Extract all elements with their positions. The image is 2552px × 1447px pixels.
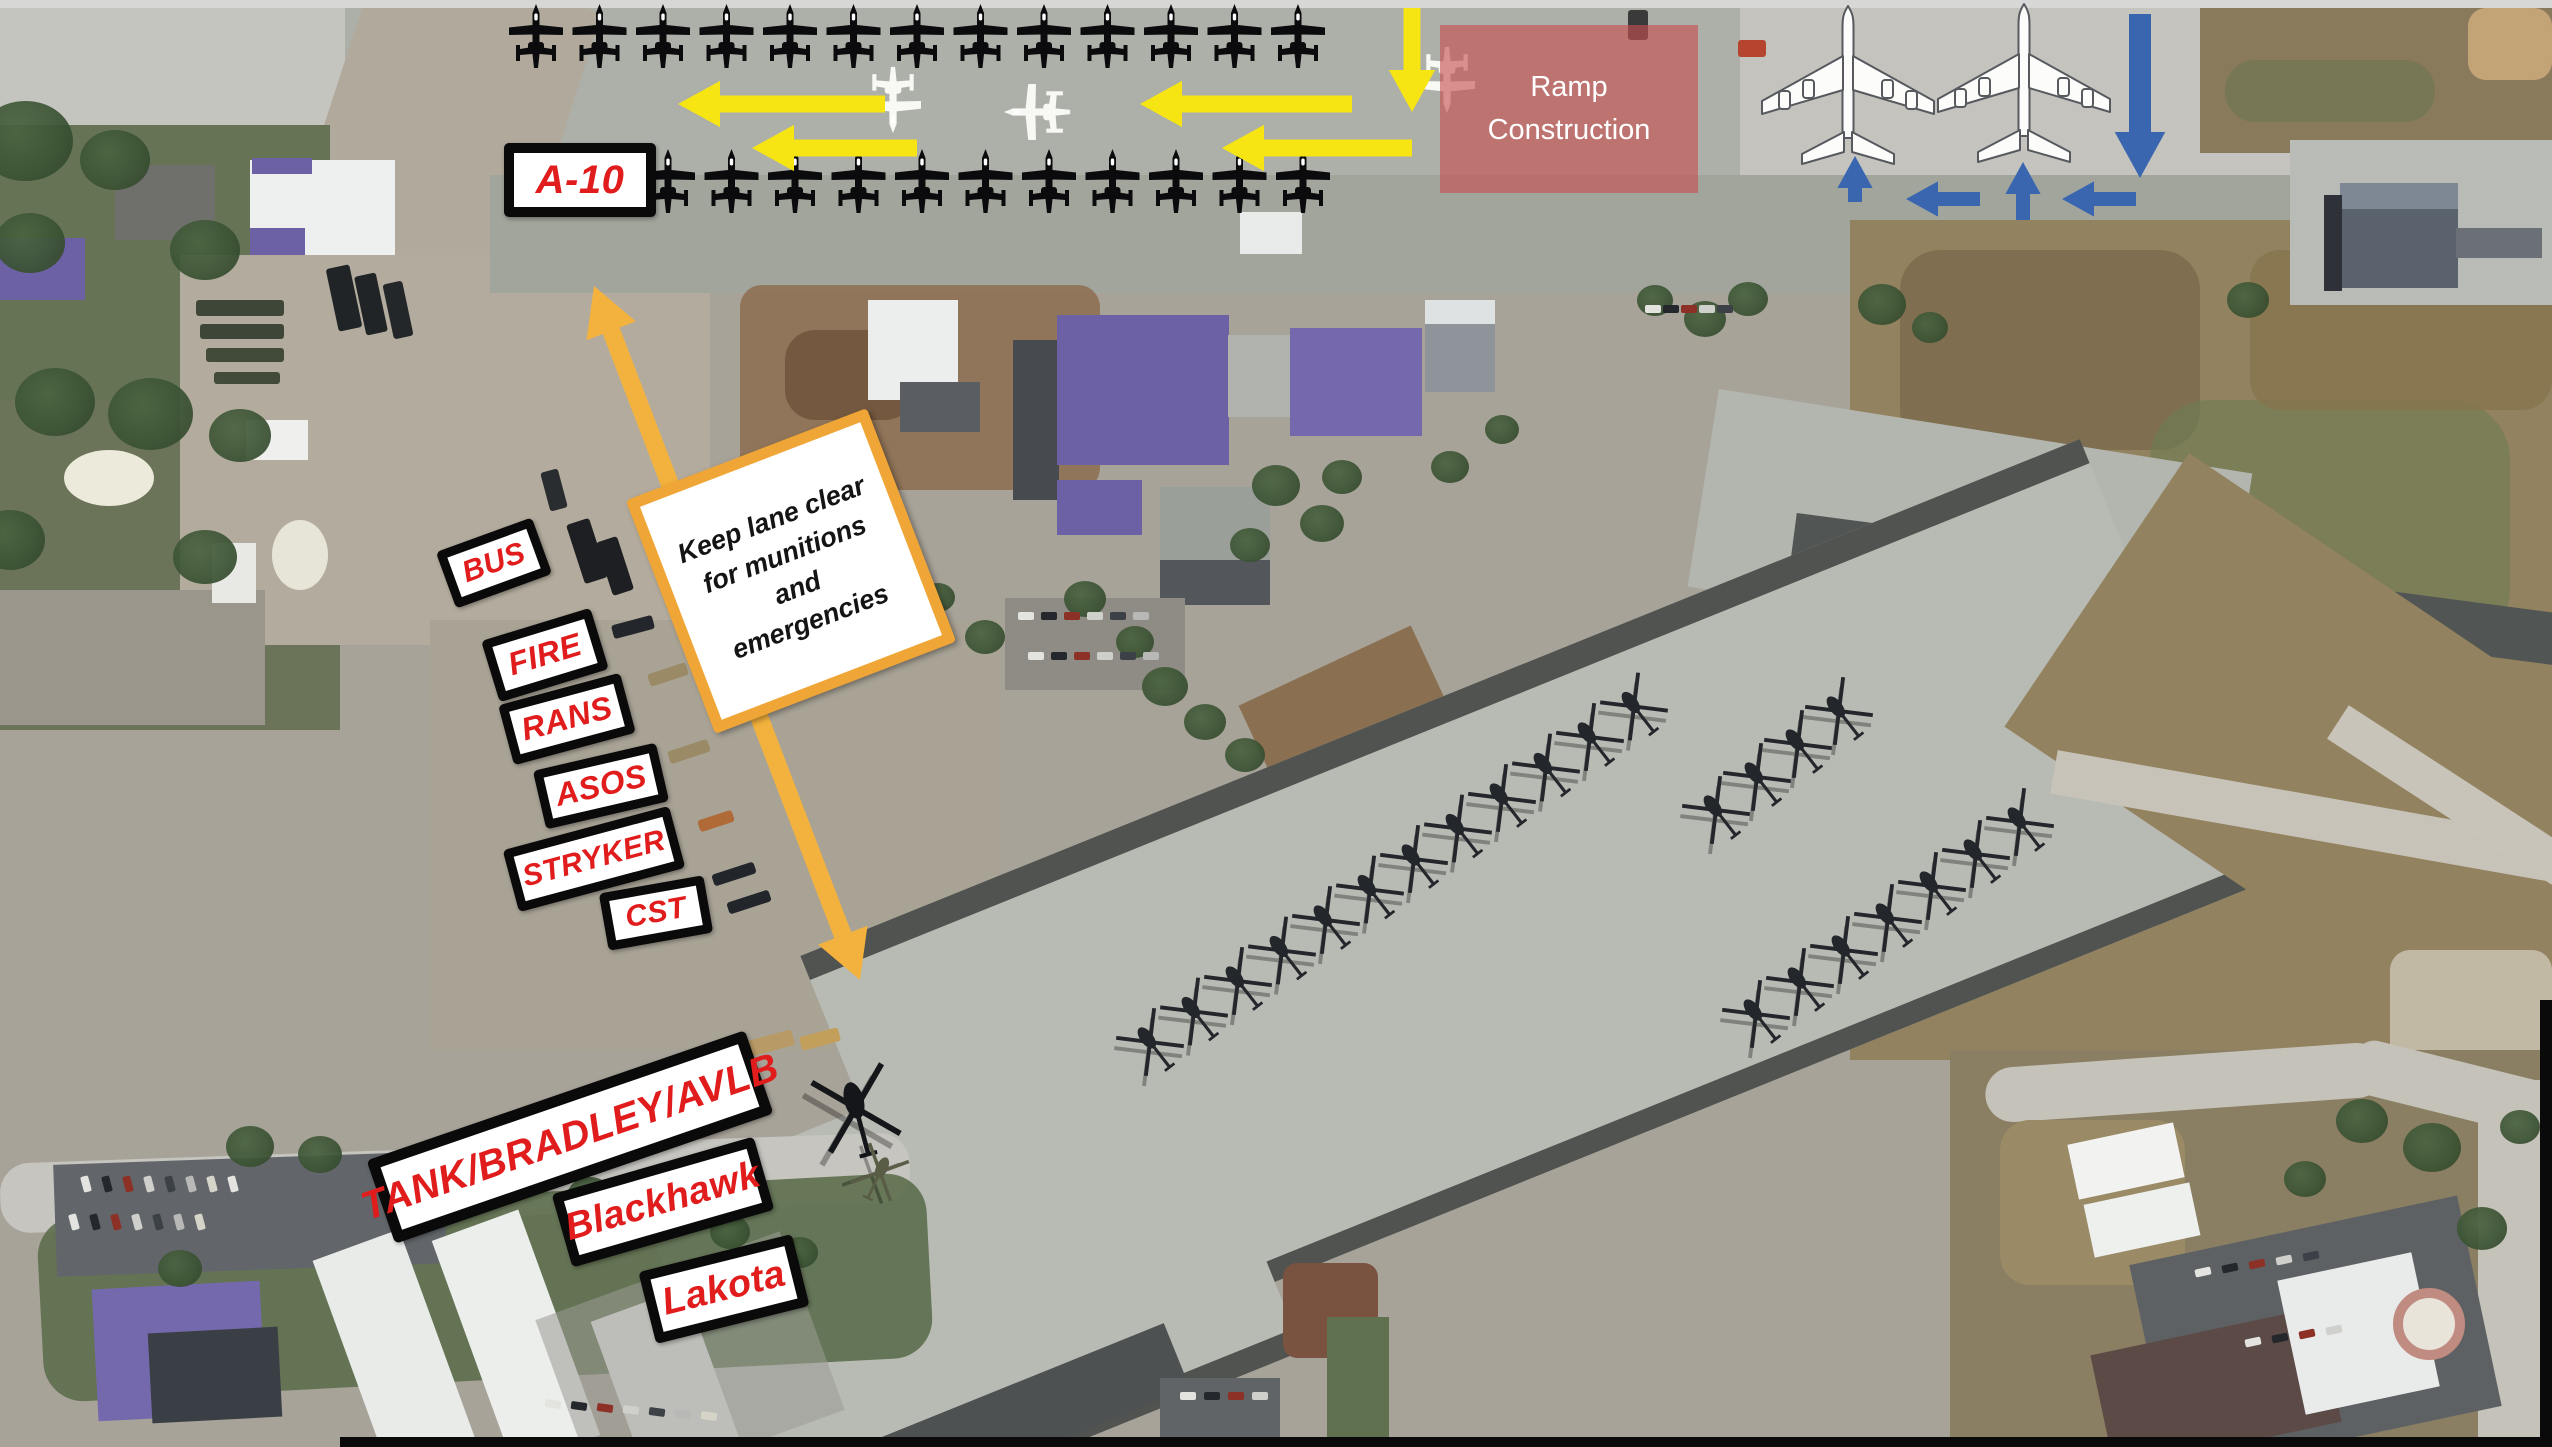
a10-icon <box>1276 149 1330 213</box>
helicopter-icon <box>1676 776 1755 856</box>
blue-up-arrow-2 <box>2005 162 2040 220</box>
a10-icon <box>573 4 627 68</box>
heavy-jet-icon <box>1762 6 1934 164</box>
a10-icon <box>890 4 944 68</box>
a10-icon <box>895 149 949 213</box>
yellow-left-arrow-2 <box>1140 81 1352 127</box>
yellow-left-arrow-1 <box>678 81 885 127</box>
a10-icon <box>705 149 759 213</box>
blue-left-arrow-1 <box>1906 181 1980 216</box>
a10-icon <box>1208 4 1262 68</box>
aircraft-and-arrow-overlay <box>0 0 2552 1447</box>
a10-icon <box>959 149 1013 213</box>
a10-icon <box>700 4 754 68</box>
ramp-construction-line: Ramp <box>1530 66 1607 110</box>
a10-icon <box>509 4 563 68</box>
yellow-left-arrow-3 <box>752 125 917 171</box>
heavy-jet-icon <box>1938 4 2110 162</box>
a10-icon <box>1271 4 1325 68</box>
a10-icon <box>636 4 690 68</box>
a10-icon <box>954 4 1008 68</box>
yellow-left-arrow-4 <box>1222 125 1412 171</box>
a10-icon <box>1086 149 1140 213</box>
blue-up-arrow-1 <box>1837 156 1872 202</box>
a10-icon <box>1017 4 1071 68</box>
a10-label: A-10 <box>504 143 656 217</box>
a10-icon <box>827 4 881 68</box>
a10-icon <box>1144 4 1198 68</box>
white-a10-icon <box>1004 84 1070 140</box>
ramp-construction-line: Construction <box>1488 109 1651 153</box>
a10-icon <box>1081 4 1135 68</box>
annotated-airfield-satellite-map: A-10BUSFIRERANSASOSSTRYKERCSTTANK/BRADLE… <box>0 0 2552 1447</box>
blue-down-arrow <box>2115 14 2166 178</box>
helicopter-icon <box>801 1064 904 1169</box>
a10-icon <box>1149 149 1203 213</box>
a10-icon <box>763 4 817 68</box>
blue-left-arrow-2 <box>2062 181 2136 216</box>
a10-icon <box>1022 149 1076 213</box>
a10-icon <box>832 149 886 213</box>
ramp-construction-zone: RampConstruction <box>1440 25 1698 193</box>
